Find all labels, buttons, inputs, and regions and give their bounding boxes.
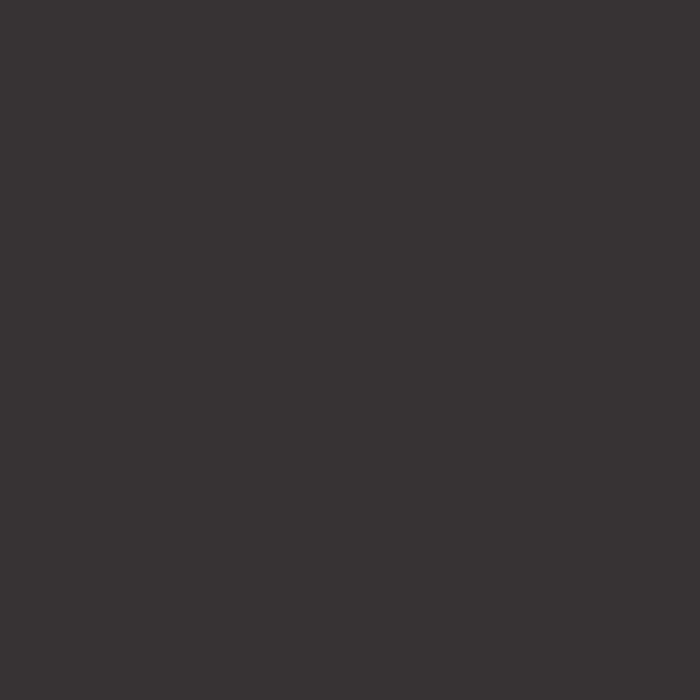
blank-screen [0,0,700,700]
